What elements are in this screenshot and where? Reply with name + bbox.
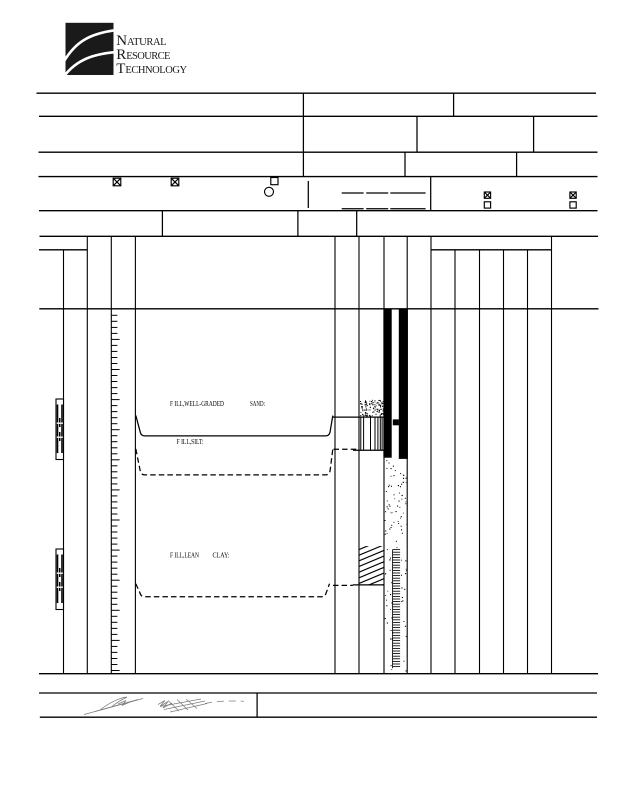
svg-text:SAND:: SAND: bbox=[250, 399, 265, 408]
svg-text:F ILL,SILT:: F ILL,SILT: bbox=[177, 437, 204, 446]
svg-text:F ILL,LEAN: F ILL,LEAN bbox=[170, 551, 199, 560]
svg-text:F ILL,WELL-GRADED: F ILL,WELL-GRADED bbox=[170, 399, 224, 408]
svg-text:TECHNOLOGY: TECHNOLOGY bbox=[116, 61, 187, 77]
svg-text:CLAY:: CLAY: bbox=[213, 551, 230, 560]
